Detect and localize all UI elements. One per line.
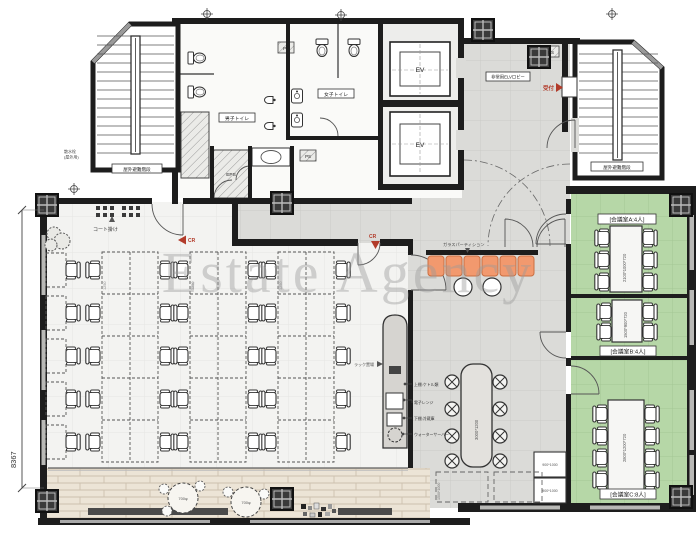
toilet-icon — [188, 52, 206, 64]
floor-plan-page: 受付 CR CR 屋外避難階段 屋外避難階段 散水栓 (屋外用) 男子トイレ 女… — [0, 0, 700, 550]
rack-label: ラック置場 — [354, 361, 374, 367]
toilet-icon — [316, 39, 328, 57]
lobby-label: 非常用ELVロビー — [491, 74, 525, 81]
terrace-table-dim: 700φ — [241, 500, 251, 505]
stair-left-label: 屋外避難階段 — [123, 166, 151, 173]
desk-pitch-label: 1250 — [103, 282, 107, 290]
ps-label: PS — [305, 154, 311, 159]
cabinet-dim: 900*1000 — [542, 489, 557, 493]
overhang-dim: 1500*1000 — [437, 483, 441, 500]
island-table — [461, 364, 492, 467]
hose-bib-icon — [68, 183, 80, 195]
equipment-note: 下棚:冷蔵庫 — [414, 416, 435, 421]
reception-label: 受付 — [543, 84, 555, 92]
meeting-b-label: [会議室B:4人] — [610, 347, 645, 355]
toilet-icon — [348, 39, 360, 57]
equipment-note: 上棚:ケトル類 — [414, 382, 439, 387]
womens-toilet-label: 女子トイレ — [324, 91, 348, 98]
fridge — [387, 413, 402, 426]
meeting-b-table-dim: 1500*900*720 — [623, 311, 628, 338]
bench — [88, 508, 228, 515]
reception-counter — [562, 77, 577, 97]
cabinet-dim: 900*1000 — [542, 463, 557, 467]
terrace-table-dim: 700φ — [178, 496, 188, 501]
corridor-floor — [238, 202, 408, 243]
survey-mark-icon — [606, 8, 618, 20]
meeting-a-table-dim: 2100*1000*720 — [622, 253, 627, 282]
ps-label: PS — [283, 46, 289, 51]
stair-right-label: 屋外避難階段 — [603, 164, 631, 171]
watermark: Estate Agency — [162, 240, 534, 305]
meeting-c-table-dim: 2800*1200*720 — [622, 433, 627, 462]
sink-icon — [292, 89, 303, 103]
mens-toilet-label: 男子トイレ — [225, 115, 249, 122]
meeting-c-label: [会議室C:8人] — [610, 490, 646, 498]
duct-shaft — [181, 112, 209, 178]
ev-door-gap — [456, 130, 466, 150]
kettle — [389, 366, 401, 374]
eps-label: EPS — [226, 172, 236, 178]
microwave — [386, 393, 403, 409]
equipment-note: ウォーターサーバー — [414, 432, 449, 437]
hose-bib-label-1: 散水栓 — [64, 148, 76, 154]
ev-label: EV — [416, 67, 425, 74]
ev-door-gap — [456, 58, 466, 78]
toilet-icon — [188, 86, 206, 98]
island-table-dim: 3000*1200 — [474, 419, 479, 440]
stair-left — [93, 24, 178, 170]
bench — [338, 508, 392, 515]
ps-label: PS — [548, 50, 554, 55]
overall-dim-label: 8367 — [9, 451, 18, 468]
hose-bib-label-2: (屋外用) — [64, 154, 79, 160]
meeting-a-label: [会議室A:4人] — [609, 215, 644, 223]
sink-icon — [292, 113, 303, 127]
ev-label: EV — [416, 142, 425, 149]
equipment-note: 電子レンジ — [414, 400, 434, 405]
floor-plan-svg: 受付 CR CR 屋外避難階段 屋外避難階段 散水栓 (屋外用) 男子トイレ 女… — [0, 0, 700, 550]
coat-rack-label: コート掛け — [93, 226, 118, 233]
